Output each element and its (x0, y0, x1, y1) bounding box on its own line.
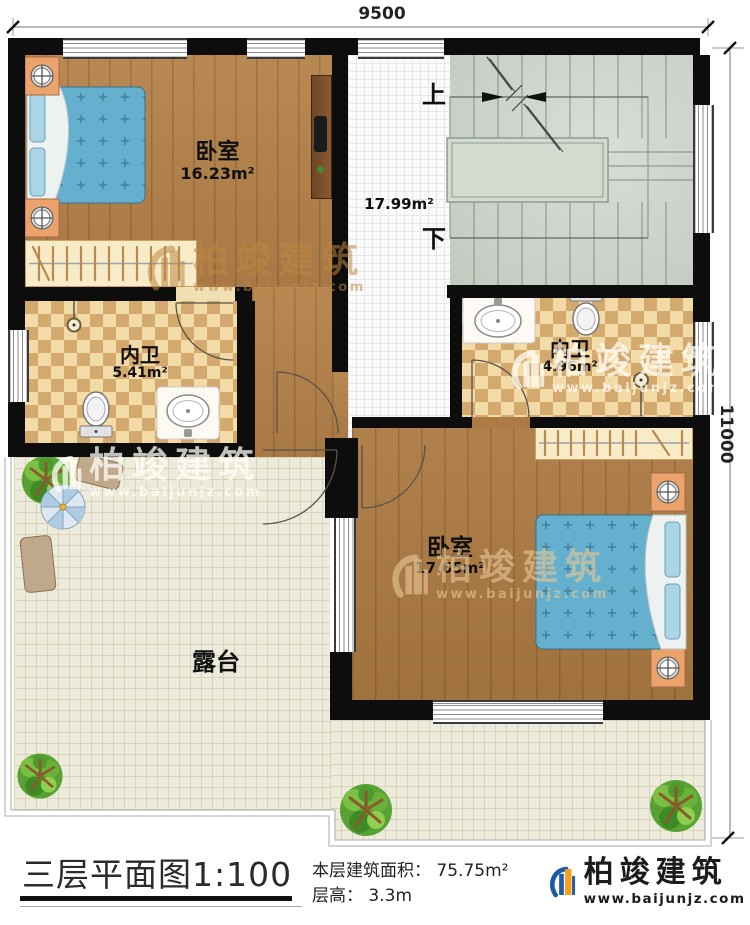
nightstand-lamp (650, 648, 686, 688)
stair-hall-area: 17.99m² (348, 197, 450, 213)
toilet-icon (76, 390, 116, 438)
stairwell-floor (450, 55, 693, 285)
drawing-scale: 1:100 (192, 855, 292, 894)
bath1-area: 5.41m² (90, 366, 190, 381)
window (247, 38, 305, 59)
wardrobe-hangers (535, 426, 693, 460)
window (358, 38, 444, 59)
title-underline (20, 896, 292, 901)
bed-double-bedroom1 (26, 86, 146, 204)
wall (330, 700, 433, 720)
tree-icon (336, 780, 396, 840)
floor-area-label: 本层建筑面积： (312, 861, 431, 881)
window (433, 700, 603, 724)
title-underline-thin (20, 906, 302, 907)
wall (530, 417, 693, 428)
wall (450, 298, 462, 417)
nightstand-lamp (24, 56, 60, 96)
floor-height-value: 3.3m (368, 886, 412, 906)
lounge-chair (19, 534, 57, 593)
wall (237, 301, 255, 443)
nightstand-lamp (650, 472, 686, 512)
wall (8, 443, 255, 457)
window (334, 518, 356, 652)
wardrobe-hangers (25, 240, 197, 287)
pendant-lamp-icon (633, 372, 649, 418)
wall (693, 415, 710, 720)
bath2-area: 4.96m² (520, 360, 620, 375)
bath1-label: 内卫 (90, 345, 190, 366)
wall (332, 55, 348, 372)
plant-icon (317, 166, 324, 173)
nightstand-lamp (24, 198, 60, 238)
wall (444, 38, 700, 55)
terrace-label: 露台 (186, 650, 246, 675)
corridor-floor (252, 287, 332, 457)
floor-info: 本层建筑面积： 75.75m² 层高： 3.3m (312, 859, 508, 908)
wall (603, 700, 710, 720)
wall (352, 417, 472, 428)
bed-double-bedroom2 (535, 514, 687, 650)
company-logo: 柏竣建筑 www.baijunjz.com (545, 852, 750, 912)
door-opening (176, 287, 235, 301)
wall (693, 233, 710, 322)
floor-height-line: 层高： 3.3m (312, 884, 508, 909)
corridor-door-opening (332, 372, 348, 438)
floor-plan-page: 9500 11000 卧室 16.23m² 17.99m² 上 下 内卫 5.4… (0, 0, 750, 925)
company-name: 柏竣建筑 (584, 855, 728, 890)
bedroom1-area: 16.23m² (160, 166, 275, 183)
dimension-width: 9500 (352, 4, 412, 24)
floor-area-value: 75.75m² (436, 861, 508, 881)
sink-icon (462, 296, 536, 344)
pendant-lamp-icon (66, 300, 82, 334)
wall (305, 38, 358, 55)
drawing-title: 三层平面图1:100 (22, 848, 292, 896)
wall (187, 38, 247, 55)
tree-icon (646, 776, 706, 836)
stairs-down-label: 下 (414, 227, 454, 252)
company-website: www.baijunjz.com (584, 891, 746, 907)
bedroom2-label: 卧室 (395, 536, 505, 560)
wall (235, 287, 252, 301)
floor-area-line: 本层建筑面积： 75.75m² (312, 859, 508, 884)
company-logo-icon (545, 852, 576, 912)
wall (325, 438, 358, 518)
bath2-label: 内卫 (520, 339, 620, 360)
window (693, 105, 714, 233)
dimension-height: 11000 (716, 402, 736, 466)
floor-height-label: 层高： (312, 886, 363, 906)
parasol-icon (40, 484, 86, 530)
window (8, 330, 29, 402)
bedroom2-area: 17.65m² (395, 561, 505, 577)
bedroom1-label: 卧室 (160, 141, 275, 164)
wall (8, 287, 176, 301)
wall (447, 285, 710, 298)
wall (8, 38, 63, 55)
drawing-title-text: 三层平面图 (22, 855, 192, 894)
window (63, 38, 187, 59)
wall (693, 55, 710, 105)
monitor-icon (314, 116, 327, 152)
sink-icon (156, 386, 220, 440)
stairs-up-label: 上 (414, 83, 454, 108)
door-opening (472, 417, 530, 428)
tree-icon (14, 750, 66, 802)
window (693, 322, 714, 415)
